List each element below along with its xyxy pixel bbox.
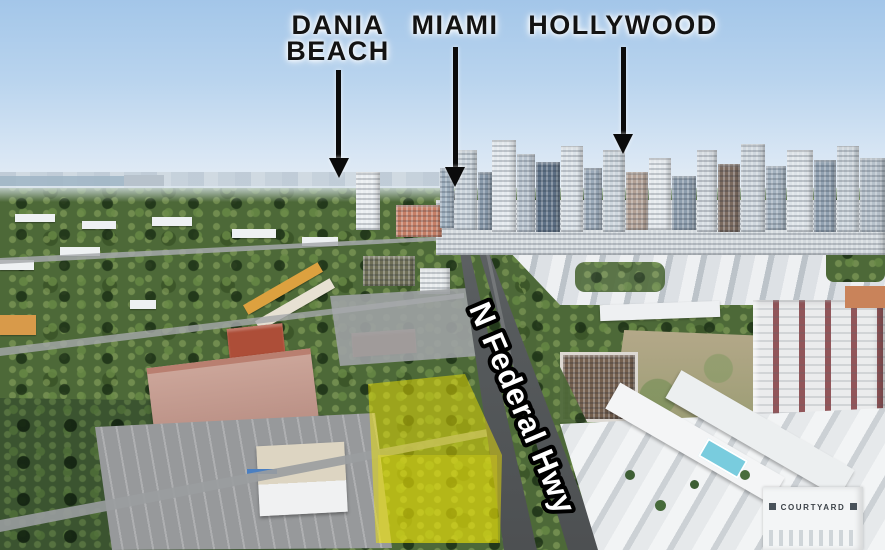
skyline-tower — [718, 164, 740, 232]
tree-patch — [575, 262, 665, 292]
low-rise-building — [130, 300, 156, 309]
callout-miami: MIAMI — [412, 13, 499, 39]
hollywood-arrow-head — [613, 134, 633, 154]
palm-tree — [655, 500, 666, 511]
aerial-photo: COURTYARD N Federal Hwy DANIA BEACH MIAM… — [0, 0, 885, 550]
low-rise-building — [152, 217, 192, 226]
skyline-tower — [356, 172, 380, 230]
hotel-block — [363, 256, 415, 286]
skyline-tower — [860, 158, 885, 232]
orange-house — [0, 315, 36, 335]
callout-dania-line1: DANIA — [286, 13, 390, 39]
low-rise-building — [232, 229, 276, 238]
terracotta-building — [845, 286, 885, 308]
palm-tree — [740, 470, 750, 480]
callout-hollywood: HOLLYWOOD — [528, 13, 718, 39]
distant-ocean — [0, 176, 135, 186]
skyline-tower — [672, 176, 696, 230]
skyline-tower — [649, 158, 671, 230]
hotel-sign-text: COURTYARD — [763, 503, 863, 512]
hollywood-arrow-line — [621, 47, 626, 134]
skyline-tower — [697, 150, 717, 232]
skyline-tower — [603, 150, 625, 232]
salmon-building — [396, 205, 442, 237]
callout-dania-beach: DANIA BEACH — [286, 13, 390, 64]
skyline-tower — [455, 150, 477, 230]
miami-arrow-line — [453, 47, 458, 167]
dania-beach-arrow-head — [329, 158, 349, 178]
skyline-tower — [561, 146, 583, 232]
dania-beach-arrow-line — [336, 70, 341, 158]
skyline-tower — [536, 162, 560, 232]
skyline-tower — [814, 160, 836, 232]
palm-tree — [625, 470, 635, 480]
miami-arrow-head — [445, 167, 465, 187]
skyline-tower — [478, 172, 492, 230]
courtyard-hotel-building: COURTYARD — [763, 487, 863, 550]
skyline-tower — [837, 146, 859, 232]
skyline-tower — [741, 144, 765, 232]
hotel-windows — [769, 530, 857, 546]
low-rise-building — [15, 214, 55, 222]
callout-dania-line2: BEACH — [286, 39, 390, 65]
low-rise-building — [82, 221, 116, 229]
skyline-tower — [626, 172, 648, 230]
skyline-tower — [787, 150, 813, 232]
palm-tree — [690, 480, 699, 489]
skyline-tower — [766, 166, 786, 230]
skyline-tower — [492, 140, 516, 232]
skyline-tower — [517, 154, 535, 232]
skyline-tower — [584, 168, 602, 230]
